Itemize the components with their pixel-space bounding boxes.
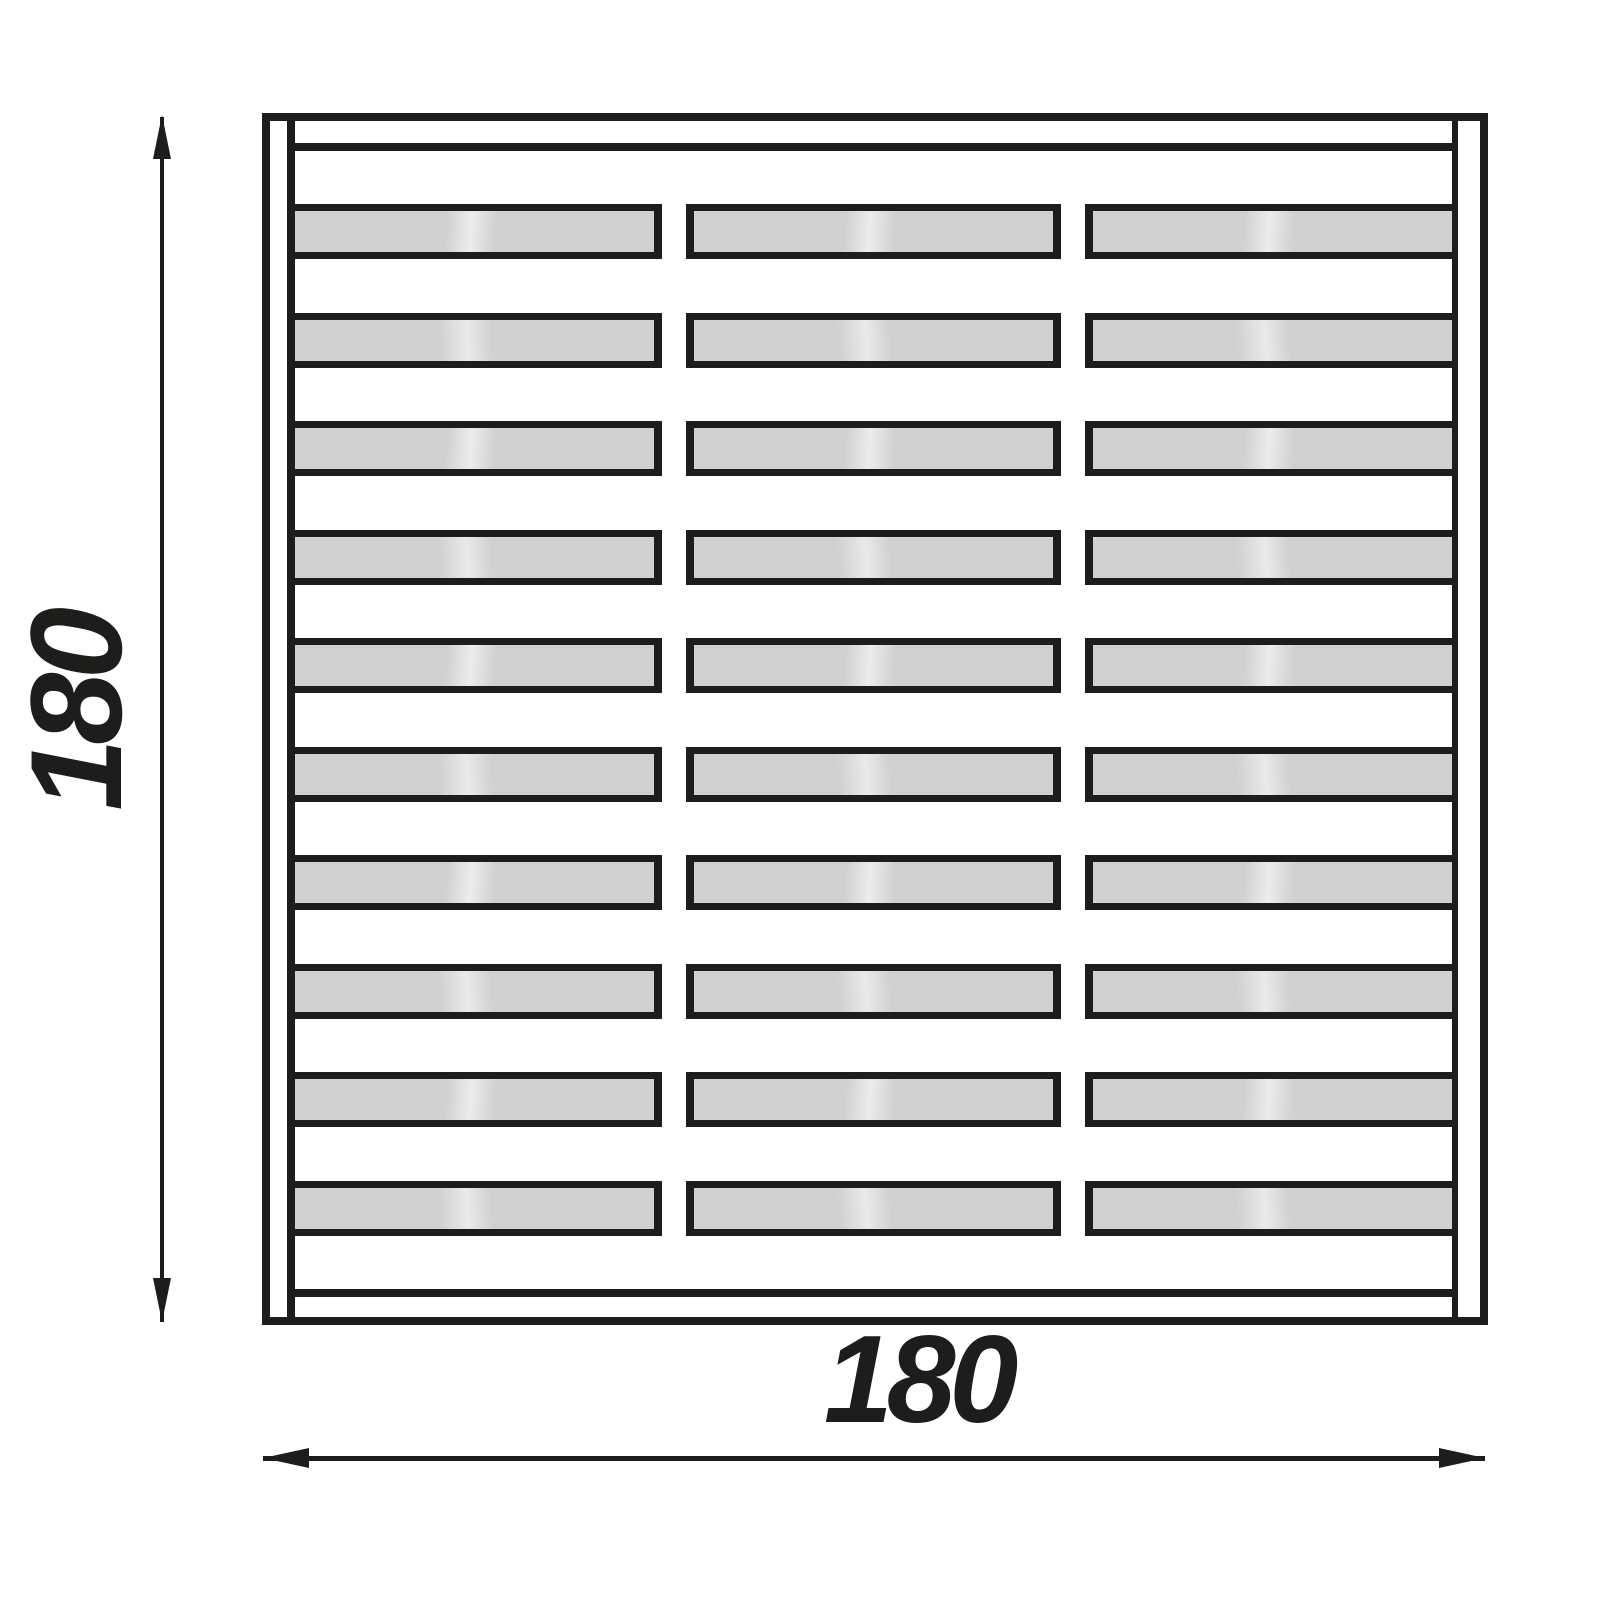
board-segment xyxy=(295,204,654,259)
board-row xyxy=(295,964,1452,1019)
height-dimension-line xyxy=(160,117,164,1322)
board-segment xyxy=(1093,747,1452,802)
board-segment xyxy=(694,964,1053,1019)
board-divider-gap xyxy=(1053,204,1093,259)
board-segment xyxy=(694,747,1053,802)
board-segment xyxy=(295,964,654,1019)
board-divider-gap xyxy=(654,1181,694,1236)
board-row xyxy=(295,855,1452,910)
board-segment xyxy=(694,421,1053,476)
height-arrow-up-icon xyxy=(153,115,171,159)
board-segment xyxy=(295,530,654,585)
board-divider-gap xyxy=(654,204,694,259)
board-segment xyxy=(694,1181,1053,1236)
board-divider-gap xyxy=(654,313,694,368)
board-row xyxy=(295,1181,1452,1236)
height-arrow-down-icon xyxy=(153,1278,171,1322)
board-divider-gap xyxy=(1053,638,1093,693)
right-post xyxy=(1452,121,1480,1317)
board-segment xyxy=(1093,964,1452,1019)
board-segment xyxy=(1093,530,1452,585)
width-arrow-left-icon xyxy=(263,1448,309,1468)
board-row xyxy=(295,1072,1452,1127)
board-segment xyxy=(1093,855,1452,910)
board-segment xyxy=(295,313,654,368)
boards-area xyxy=(295,151,1452,1289)
board-segment xyxy=(1093,1181,1452,1236)
board-segment xyxy=(1093,638,1452,693)
board-divider-gap xyxy=(654,421,694,476)
board-row xyxy=(295,421,1452,476)
board-row xyxy=(295,638,1452,693)
board-divider-gap xyxy=(1053,855,1093,910)
board-segment xyxy=(1093,204,1452,259)
board-segment xyxy=(295,1072,654,1127)
board-segment xyxy=(1093,313,1452,368)
board-segment xyxy=(295,638,654,693)
board-segment xyxy=(694,530,1053,585)
board-divider-gap xyxy=(1053,747,1093,802)
board-divider-gap xyxy=(654,964,694,1019)
width-dimension-label: 180 xyxy=(768,1318,1068,1442)
board-divider-gap xyxy=(654,855,694,910)
board-divider-gap xyxy=(1053,1181,1093,1236)
board-divider-gap xyxy=(1053,313,1093,368)
board-segment xyxy=(295,421,654,476)
height-dimension-label: 180 xyxy=(11,613,141,810)
board-segment xyxy=(694,855,1053,910)
board-segment xyxy=(694,1072,1053,1127)
panel-interior xyxy=(295,121,1452,1317)
width-dimension-line xyxy=(263,1456,1485,1461)
board-divider-gap xyxy=(1053,421,1093,476)
board-segment xyxy=(694,313,1053,368)
board-segment xyxy=(1093,421,1452,476)
board-divider-gap xyxy=(654,530,694,585)
left-post xyxy=(270,121,295,1317)
board-divider-gap xyxy=(1053,1072,1093,1127)
board-segment xyxy=(694,204,1053,259)
board-segment xyxy=(694,638,1053,693)
board-row xyxy=(295,747,1452,802)
board-divider-gap xyxy=(1053,964,1093,1019)
board-divider-gap xyxy=(1053,530,1093,585)
board-divider-gap xyxy=(654,747,694,802)
board-row xyxy=(295,204,1452,259)
width-arrow-right-icon xyxy=(1439,1448,1485,1468)
board-segment xyxy=(295,747,654,802)
board-divider-gap xyxy=(654,1072,694,1127)
board-segment xyxy=(295,855,654,910)
board-divider-gap xyxy=(654,638,694,693)
board-segment xyxy=(1093,1072,1452,1127)
drawing-canvas: 180 180 xyxy=(0,0,1600,1600)
board-row xyxy=(295,530,1452,585)
fence-panel xyxy=(262,113,1488,1325)
board-row xyxy=(295,313,1452,368)
top-rail xyxy=(295,121,1452,151)
board-segment xyxy=(295,1181,654,1236)
